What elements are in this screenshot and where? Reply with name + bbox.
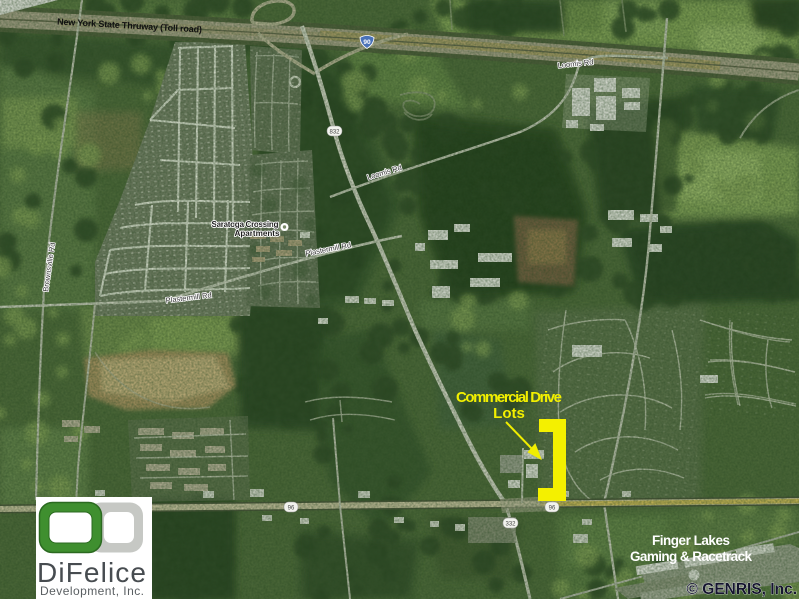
- svg-text:Development, Inc.: Development, Inc.: [40, 584, 144, 598]
- svg-text:96: 96: [549, 506, 556, 512]
- svg-text:96: 96: [288, 506, 295, 512]
- svg-text:© GENRIS, Inc.: © GENRIS, Inc.: [687, 581, 797, 598]
- svg-text:Gaming & Racetrack: Gaming & Racetrack: [630, 549, 752, 564]
- svg-text:332: 332: [505, 522, 516, 528]
- svg-text:Apartments: Apartments: [235, 229, 280, 238]
- svg-text:Lots: Lots: [493, 405, 525, 422]
- svg-text:Commercial Drive: Commercial Drive: [456, 389, 562, 406]
- svg-text:Saratoga Crossing: Saratoga Crossing: [212, 220, 279, 229]
- svg-text:Finger Lakes: Finger Lakes: [652, 533, 730, 548]
- svg-text:90: 90: [363, 39, 371, 46]
- svg-text:832: 832: [329, 130, 340, 136]
